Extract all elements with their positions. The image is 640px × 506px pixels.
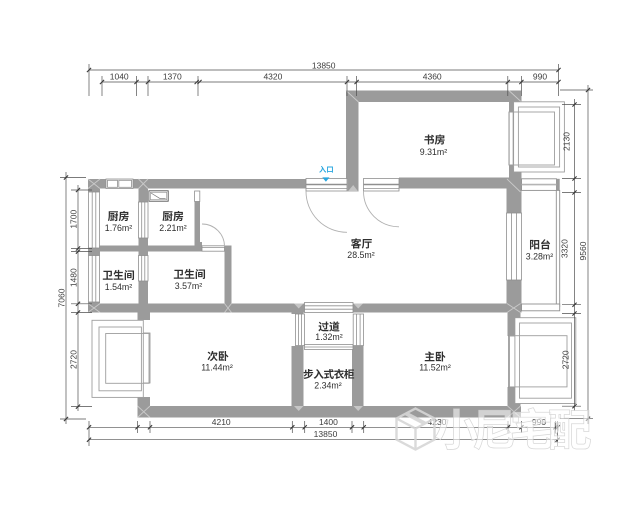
svg-text:1370: 1370: [163, 72, 182, 82]
svg-text:2720: 2720: [69, 350, 79, 369]
svg-text:1700: 1700: [69, 209, 79, 228]
svg-text:4210: 4210: [212, 417, 231, 427]
svg-text:13850: 13850: [314, 429, 338, 439]
svg-text:1480: 1480: [69, 268, 79, 287]
svg-text:1040: 1040: [110, 72, 129, 82]
svg-text:2.21m²: 2.21m²: [159, 223, 186, 233]
svg-text:1.32m²: 1.32m²: [315, 332, 342, 342]
svg-text:11.52m²: 11.52m²: [419, 363, 451, 373]
svg-text:2130: 2130: [562, 132, 572, 151]
svg-text:3.57m²: 3.57m²: [175, 281, 202, 291]
svg-text:990: 990: [533, 72, 547, 82]
svg-text:1400: 1400: [319, 417, 338, 427]
svg-text:4360: 4360: [423, 72, 442, 82]
svg-text:11.44m²: 11.44m²: [201, 363, 233, 373]
svg-text:7060: 7060: [57, 288, 67, 307]
svg-text:9.31m²: 9.31m²: [420, 147, 447, 157]
svg-text:3320: 3320: [560, 239, 570, 258]
svg-text:2720: 2720: [561, 350, 571, 369]
svg-text:1.76m²: 1.76m²: [105, 223, 132, 233]
svg-text:9560: 9560: [578, 241, 588, 260]
svg-text:13850: 13850: [312, 61, 336, 71]
svg-text:2.34m²: 2.34m²: [314, 381, 341, 391]
svg-text:28.5m²: 28.5m²: [347, 250, 374, 260]
svg-text:1.54m²: 1.54m²: [105, 282, 132, 292]
svg-text:3.28m²: 3.28m²: [526, 252, 553, 262]
svg-text:4320: 4320: [263, 72, 282, 82]
